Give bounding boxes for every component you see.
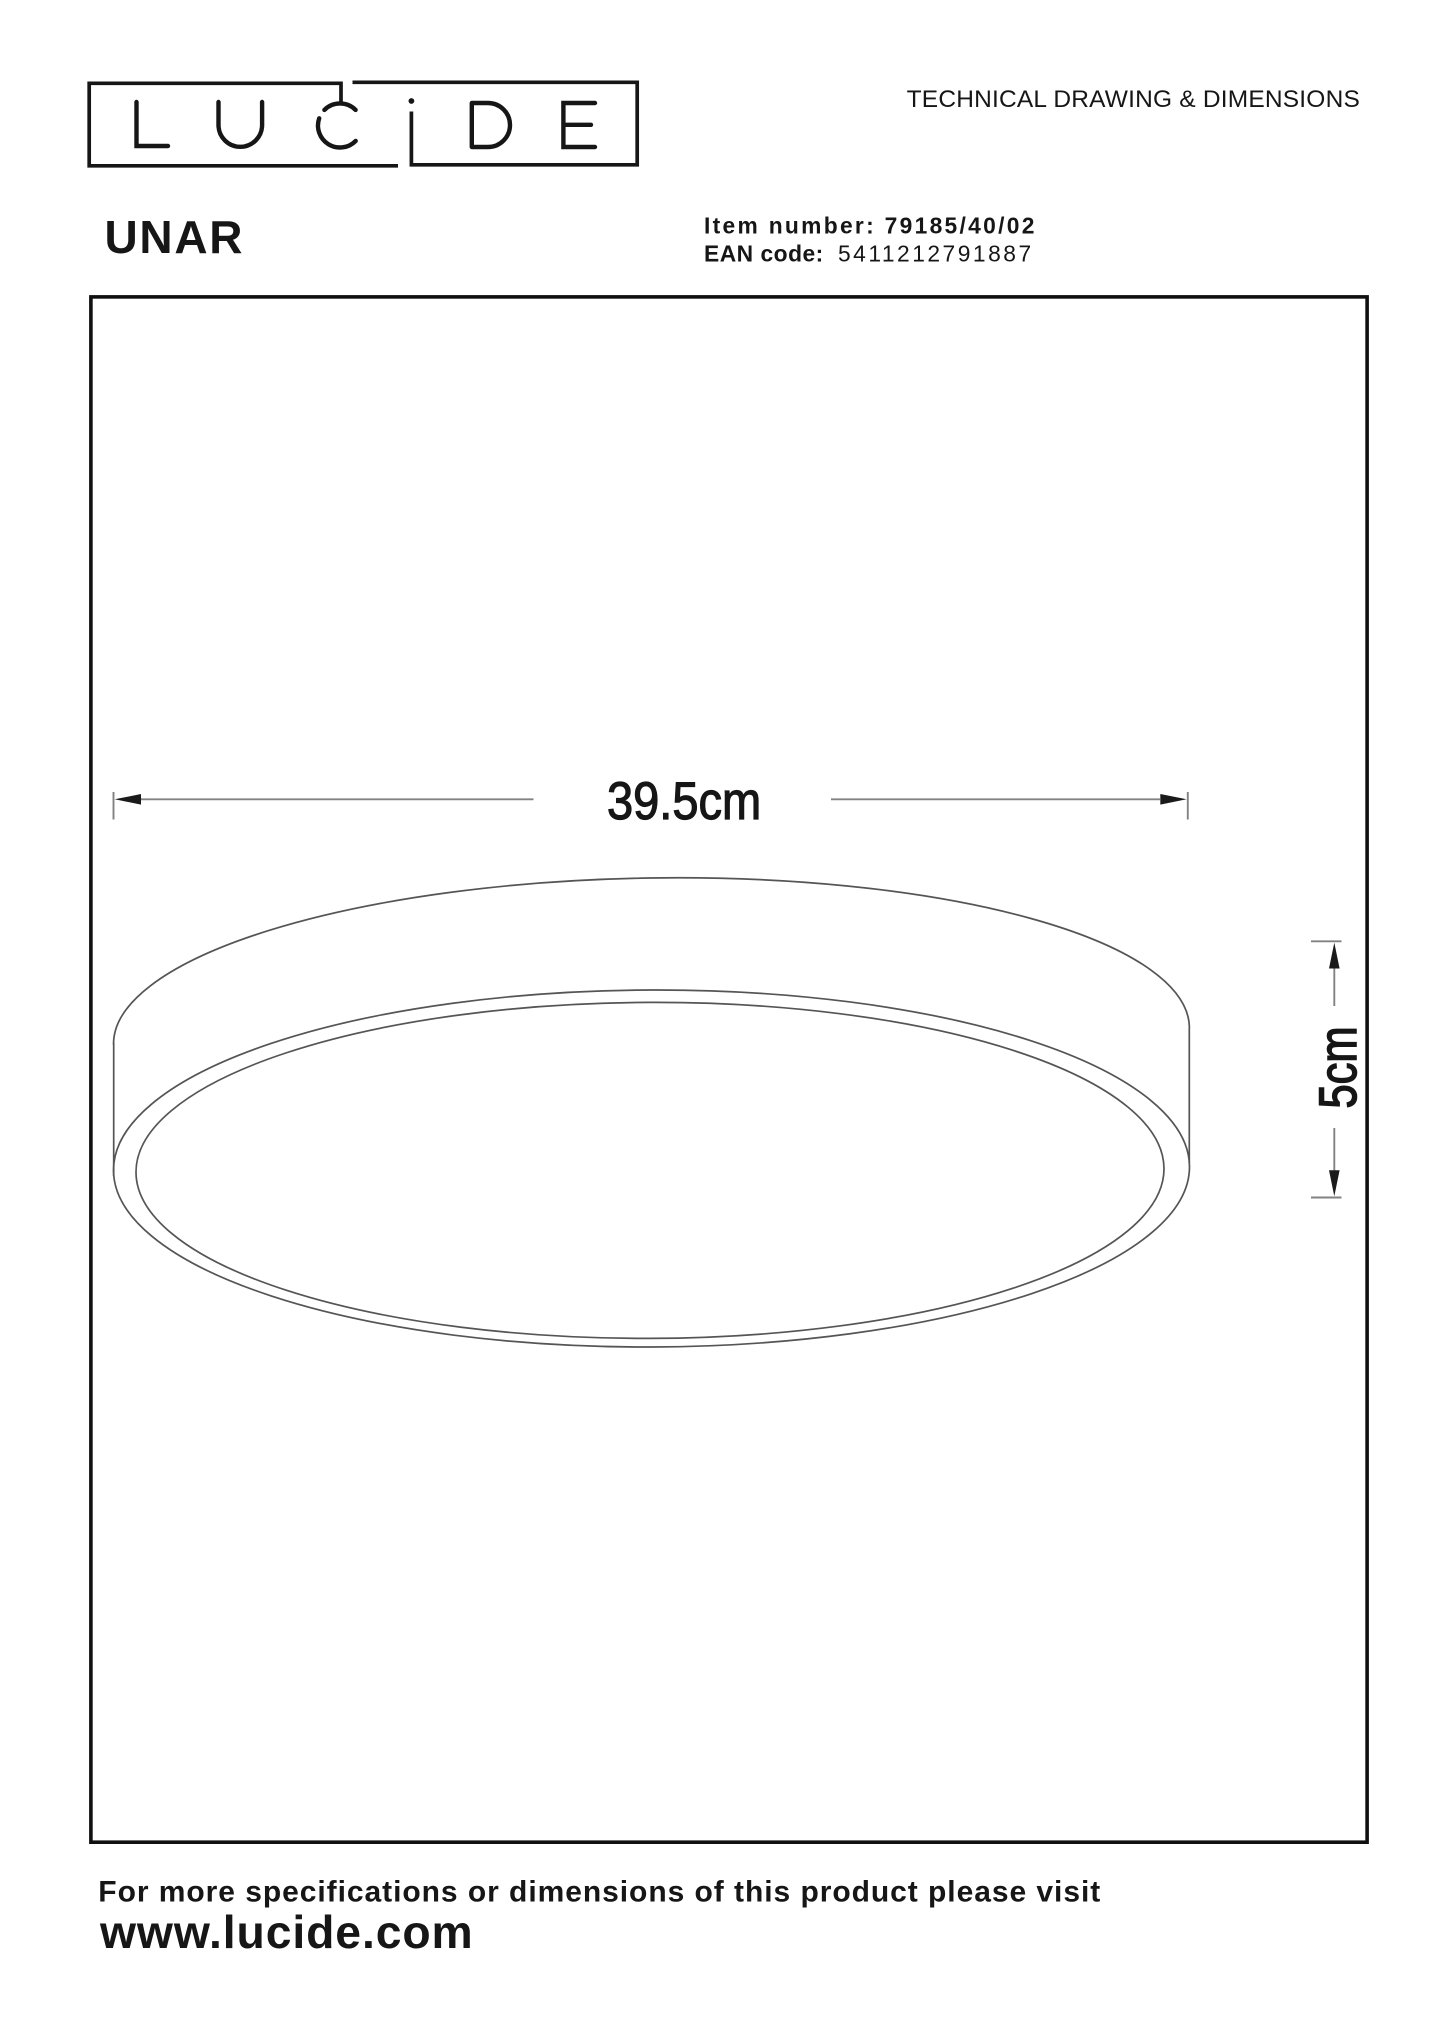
svg-text:5411212791887: 5411212791887 [838, 241, 1034, 267]
svg-text:For more specifications or dim: For more specifications or dimensions of… [98, 1876, 1101, 1909]
svg-text:TECHNICAL DRAWING & DIMENSIONS: TECHNICAL DRAWING & DIMENSIONS [907, 86, 1360, 113]
svg-text:Item number: 79185/40/02: Item number: 79185/40/02 [704, 212, 1037, 238]
svg-text:www.lucide.com: www.lucide.com [99, 1906, 474, 1958]
svg-text:UNAR: UNAR [105, 211, 245, 263]
svg-text:39.5cm: 39.5cm [607, 771, 761, 830]
svg-text:EAN code:: EAN code: [704, 241, 824, 267]
svg-text:5cm: 5cm [1309, 1026, 1368, 1108]
